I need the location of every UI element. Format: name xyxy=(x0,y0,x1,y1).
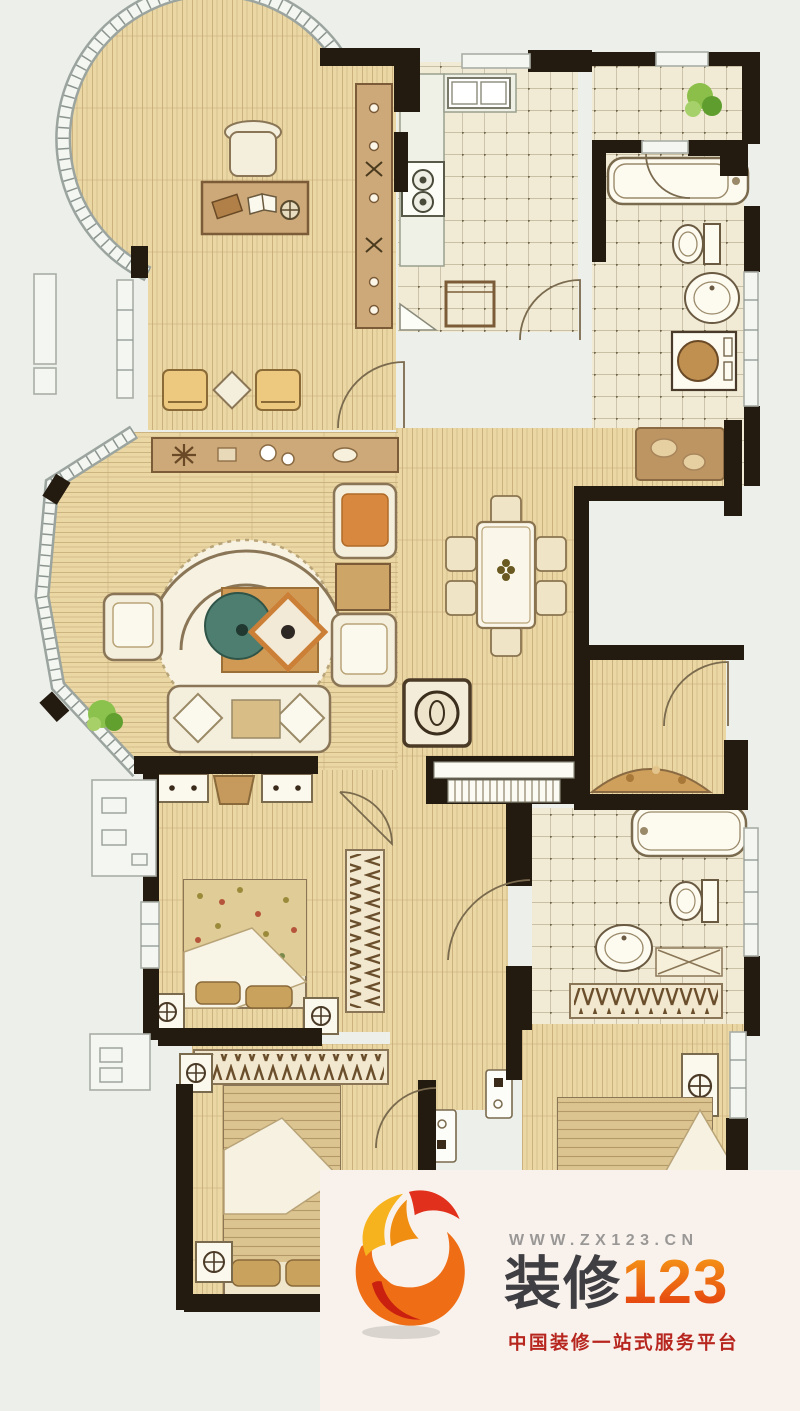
logo-shadow xyxy=(362,1325,440,1339)
hallway-shelf xyxy=(434,762,574,802)
kitchen-top-door xyxy=(462,54,530,68)
master-toilet-bowl xyxy=(670,882,702,920)
dining-chair xyxy=(446,581,476,615)
foyer-window xyxy=(656,52,708,66)
logo-petal-red xyxy=(409,1190,460,1219)
bed3-pillow xyxy=(232,1260,280,1286)
neighbor-window xyxy=(34,274,56,364)
bedroom2-window xyxy=(141,902,159,968)
study-left-window xyxy=(117,280,133,398)
bath-door xyxy=(642,141,688,153)
desk-chair-seat xyxy=(230,132,276,176)
side-table xyxy=(336,564,390,610)
dining-chair xyxy=(491,626,521,656)
screenshot-stage: WWW.ZX123.CN 装修123 中国装修一站式服务平台 xyxy=(0,0,800,1411)
side-chair-left xyxy=(163,370,207,410)
star-plant xyxy=(172,444,196,466)
neighbor-window xyxy=(34,368,56,394)
dining-chair xyxy=(446,537,476,571)
toilet-tank xyxy=(704,224,720,264)
toilet-bowl xyxy=(673,225,703,263)
brand-number: 123 xyxy=(622,1248,728,1317)
watermark-brand: 装修123 xyxy=(504,1252,728,1314)
bed2-pillow xyxy=(246,986,292,1008)
master-toilet-tank xyxy=(702,880,718,922)
watermark-tagline: 中国装修一站式服务平台 xyxy=(508,1329,739,1355)
dresser xyxy=(262,774,312,802)
dining-chair xyxy=(536,581,566,615)
zx123-logo-icon xyxy=(334,1186,476,1342)
side-chair-right xyxy=(256,370,300,410)
brand-chinese: 装修 xyxy=(504,1252,622,1316)
master-bed-window xyxy=(730,1032,746,1118)
pedestal-sink xyxy=(685,273,739,323)
bath-right-window xyxy=(744,272,758,406)
bed2-pillow xyxy=(196,982,240,1004)
open-book xyxy=(248,194,276,214)
logo-center xyxy=(383,1249,420,1286)
stool xyxy=(214,776,254,804)
entry-mat xyxy=(636,428,724,480)
dining-chair xyxy=(536,537,566,571)
master-bathtub xyxy=(632,806,746,856)
bookshelf xyxy=(356,84,392,328)
dresser xyxy=(158,774,208,802)
watermark-panel: WWW.ZX123.CN 装修123 中国装修一站式服务平台 xyxy=(320,1170,800,1411)
